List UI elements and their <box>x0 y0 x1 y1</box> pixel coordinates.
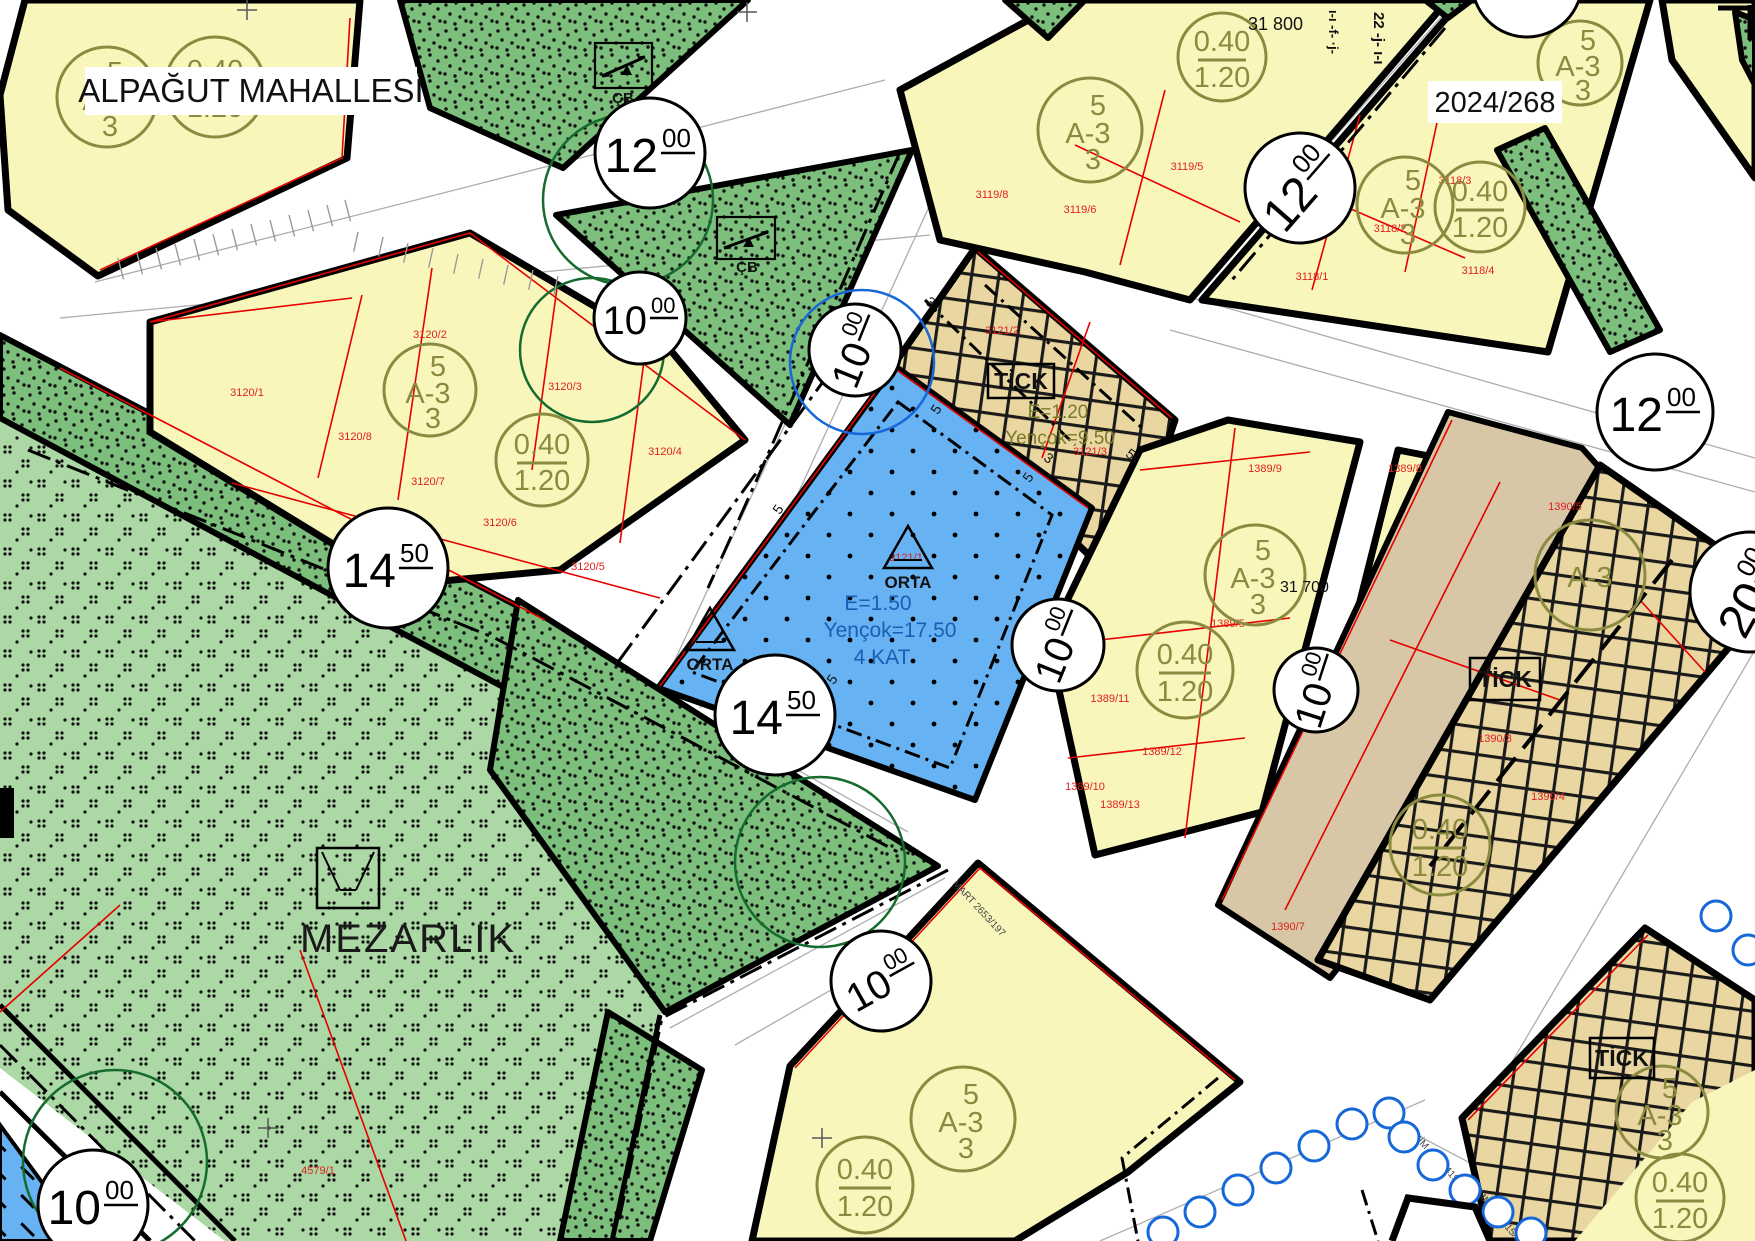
road-circle-12: 12 00 <box>595 98 705 208</box>
road-circle-12: 12 00 <box>1597 354 1713 470</box>
tick-name: TİCK <box>1595 1045 1649 1071</box>
parcel-id: 1389/11 <box>1091 693 1130 705</box>
parcel-id: 3119/8 <box>976 189 1009 201</box>
density-top: 0.40 <box>1652 1167 1708 1199</box>
parcel-id: 3120/1 <box>230 387 264 399</box>
a3-bottom: 3 <box>1250 589 1266 621</box>
parcel-id: 1390/3 <box>1478 733 1512 745</box>
parcel-id: 1390/7 <box>1271 921 1305 933</box>
block-3120-north <box>0 0 360 276</box>
density-bottom: 1.20 <box>514 465 570 497</box>
grid-coordinate-north: 31 800 <box>1248 14 1303 34</box>
a3-bottom: 3 <box>425 403 441 435</box>
road-width-sup: 00 <box>1667 382 1696 412</box>
road-width-main: 14 <box>343 545 396 598</box>
density-top: 0.40 <box>514 429 570 461</box>
parcel-id: 3121/1 <box>889 552 923 564</box>
parcel-id: 3119/5 <box>1171 161 1204 173</box>
road-width-sup: 50 <box>787 685 816 715</box>
road-width-main: 12 <box>605 130 658 183</box>
blue-zone-floors: 4 KAT <box>854 646 911 669</box>
road-width-sup: 00 <box>651 293 675 318</box>
parcel-id: 3118/4 <box>1462 265 1495 277</box>
density-top: 0.40 <box>1412 814 1468 846</box>
parcel-id: 1389/9 <box>1248 463 1282 475</box>
sheet-index-1: ı-ı -f- ·j- <box>1326 10 1341 54</box>
a3-bottom: 3 <box>1085 144 1101 176</box>
road-width-main: 10 <box>603 299 648 343</box>
map-canvas: 3120/1 3120/2 3120/3 3120/4 3120/5 3120/… <box>0 0 1755 1241</box>
neighborhood-label: ALPAĞUT MAHALLESİ <box>78 67 423 115</box>
density-bottom: 1.20 <box>1652 1203 1708 1235</box>
road-circle-10: 10 00 <box>594 272 686 364</box>
a3-bottom: 3 <box>958 1133 974 1165</box>
a3-label: A-3 <box>1567 562 1612 594</box>
road-circle-14: 14 50 <box>328 508 448 628</box>
a3-bottom: 3 <box>1400 219 1416 251</box>
parcel-id: 1390/5 <box>1548 501 1582 513</box>
parcel-id: 3119/6 <box>1064 204 1097 216</box>
parcel-id: 1389/12 <box>1142 746 1182 758</box>
grid-coordinate-south: 31 700 <box>1280 579 1329 596</box>
block-boundary-partial <box>1392 1198 1490 1241</box>
density-top: 0.40 <box>1452 176 1508 208</box>
plan-number-label: 2024/268 <box>1428 81 1562 123</box>
parcel-id: 3121/2 <box>985 325 1019 337</box>
density-bottom: 1.20 <box>1157 676 1213 708</box>
road-width-main: 14 <box>730 692 783 745</box>
road-width-main: 10 <box>48 1182 101 1235</box>
orta-label: ORTA <box>687 655 734 674</box>
road-width-sup: 50 <box>400 538 429 568</box>
parcel-id: 1389/13 <box>1100 799 1140 811</box>
parcel-id: 3120/6 <box>483 517 517 529</box>
zoning-map: 3120/1 3120/2 3120/3 3120/4 3120/5 3120/… <box>0 0 1755 1241</box>
parcel-id: 3120/5 <box>571 561 605 573</box>
parcel-id: 1389/8 <box>1388 463 1422 475</box>
plan-number-text: 2024/268 <box>1435 87 1556 119</box>
road-width-sup: 00 <box>662 123 691 153</box>
tick-hmax: Yençok=9.50 <box>1005 428 1115 449</box>
tick-name: TİCK <box>994 368 1048 394</box>
cb-label: ÇB <box>612 90 634 107</box>
density-bottom: 1.20 <box>1452 212 1508 244</box>
density-bottom: 1.20 <box>1194 62 1250 94</box>
neighborhood-text: ALPAĞUT MAHALLESİ <box>78 72 423 109</box>
road-width-sup: 00 <box>105 1175 134 1205</box>
density-bottom: 1.20 <box>837 1191 893 1223</box>
parcel-id: 3120/7 <box>411 476 445 488</box>
blue-zone-e: E=1.50 <box>844 592 911 615</box>
density-top: 0.40 <box>1194 26 1250 58</box>
parcel-id: 3118/1 <box>1296 271 1329 283</box>
road-stub <box>0 788 14 838</box>
sheet-index-2: 22 -j- ı-ı <box>1370 12 1387 65</box>
parcel-id: 1390/4 <box>1531 791 1565 803</box>
tick-e: E=1.20 <box>1028 402 1089 423</box>
parcel-id: 1389/10 <box>1065 781 1105 793</box>
parcel-id: 3120/8 <box>338 431 372 443</box>
density-top: 0.40 <box>1157 639 1213 671</box>
parcel-id: 3120/2 <box>413 329 447 341</box>
parcel-id: 3120/4 <box>648 446 682 458</box>
tick-name: TİCK <box>1478 666 1532 692</box>
blue-zone-hmax: Yençok=17.50 <box>824 619 957 642</box>
density-top: 0.40 <box>837 1154 893 1186</box>
cb-label: ÇB <box>736 259 758 276</box>
parcel-id: 3120/3 <box>548 381 582 393</box>
density-bottom: 1.20 <box>1412 851 1468 883</box>
orta-label: ORTA <box>885 573 932 592</box>
a3-bottom: 3 <box>1657 1125 1673 1157</box>
road-width-main: 12 <box>1610 389 1663 442</box>
a3-bottom: 3 <box>1575 75 1591 107</box>
road-circle-10: 10 00 <box>38 1150 148 1241</box>
a3-bottom: 3 <box>102 111 118 143</box>
cemetery-label: MEZARLIK <box>300 917 516 961</box>
parcel-id: 4579/1 <box>301 1165 335 1177</box>
